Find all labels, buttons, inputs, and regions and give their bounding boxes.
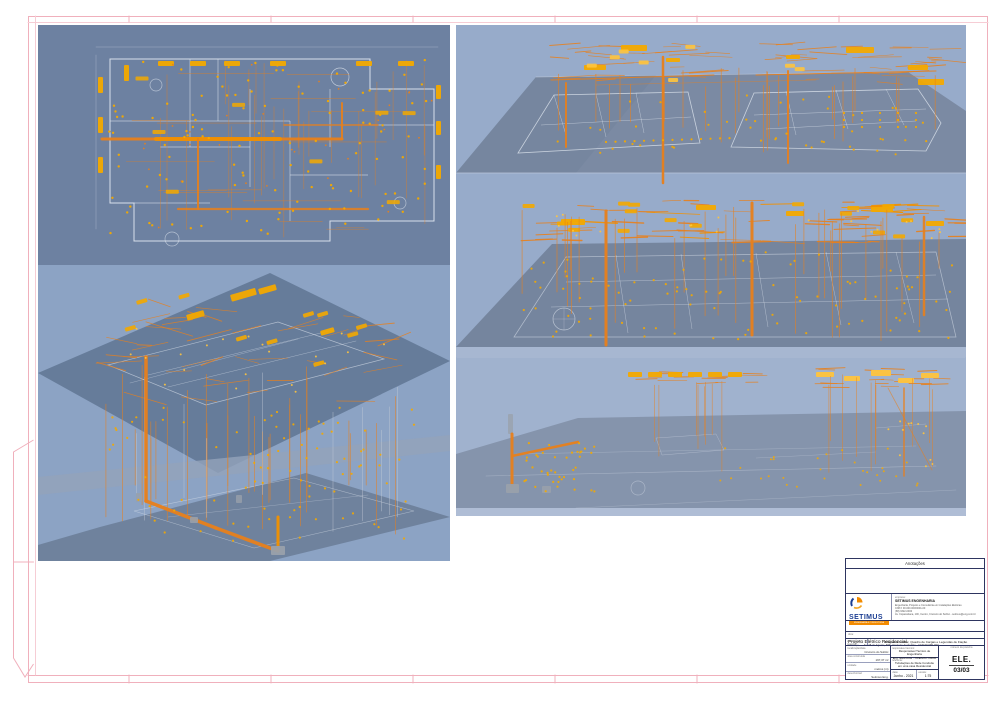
- info-field: localização/data Cruzeiro do Sul/Ac: [846, 646, 890, 655]
- middle-column: responsável técnico: Responsável Técnico…: [891, 646, 939, 679]
- annotations-empty-area: [846, 569, 984, 593]
- info-field: desenho/cad Setimus Eng.: [846, 672, 890, 681]
- annotations-header: Anotações: [846, 559, 984, 569]
- field-value: Cruzeiro do Sul/Ac: [848, 650, 889, 654]
- date-cell: data: Junho - 2021: [891, 670, 917, 680]
- setimus-logo-icon: [849, 596, 865, 609]
- sheet-number-box: número da prancha ELE. 03/03: [939, 646, 984, 679]
- info-field: área construída 197,37 m²: [846, 655, 890, 664]
- exploded-isometric-drawing: [38, 265, 450, 561]
- sheet-number-label: número da prancha: [939, 646, 984, 649]
- responsible-box: responsável técnico: Responsável Técnico…: [891, 646, 938, 658]
- viewport-perspective-3d-bottom: [456, 358, 966, 516]
- info-field: unidade metros (m): [846, 663, 890, 672]
- field-value: metros (m): [848, 667, 889, 671]
- viewport-perspective-3d-top: [456, 25, 966, 197]
- subject-box: referente: Tubulações de Rede Conduíte e…: [891, 658, 938, 670]
- sheet-number: 03/03: [939, 667, 984, 674]
- perspective-3d-drawing-top: [456, 25, 966, 197]
- title-block-grid: localização/data Cruzeiro do Sul/Ac área…: [846, 645, 984, 679]
- date-scale-row: data: Junho - 2021 escala: 1:75: [891, 670, 938, 680]
- scale-cell: escala: 1:75: [917, 670, 939, 680]
- address-row: endereço: Av. 25 de Agosto, 505, Cruzeir…: [846, 631, 984, 638]
- info-fields-column: localização/data Cruzeiro do Sul/Ac área…: [846, 646, 891, 679]
- company-info-cell: empresa: SETIMUS ENGENHARIA Engenharia, …: [892, 594, 984, 620]
- viewport-perspective-3d-middle: [456, 197, 966, 358]
- company-row: SETIMUS ENGENHARIA & CONSULTORIA empresa…: [846, 593, 984, 620]
- subject-line: em uma casa Residencial: [891, 665, 938, 669]
- company-logo-cell: SETIMUS ENGENHARIA & CONSULTORIA: [846, 594, 892, 620]
- company-detail-line: Av. Copacabana, 100, Centro, Cruzeiro do…: [895, 613, 982, 616]
- perspective-3d-drawing-middle: [456, 197, 966, 358]
- field-value: 197,37 m²: [848, 658, 889, 662]
- title-block: Anotações SETIMUS ENGENHARIA & CONSULTOR…: [845, 558, 985, 680]
- date-value: Junho - 2021: [893, 674, 915, 678]
- viewport-floor-plan-2d: [38, 25, 450, 265]
- floor-plan-2d-drawing: [38, 25, 450, 265]
- project-row: obra: Projeto Elétrico Residencial: [846, 620, 984, 631]
- drawing-sheet: Anotações SETIMUS ENGENHARIA & CONSULTOR…: [0, 0, 1000, 707]
- viewport-exploded-isometric-3d: [38, 265, 450, 561]
- sheet-code: ELE.: [949, 655, 974, 666]
- field-value: Setimus Eng.: [848, 675, 889, 679]
- scale-value: 1:75: [919, 674, 938, 678]
- sheet-content-row: conteúdo da prancha: Diagrama Unifilar, …: [846, 638, 984, 645]
- perspective-3d-drawing-bottom: [456, 358, 966, 516]
